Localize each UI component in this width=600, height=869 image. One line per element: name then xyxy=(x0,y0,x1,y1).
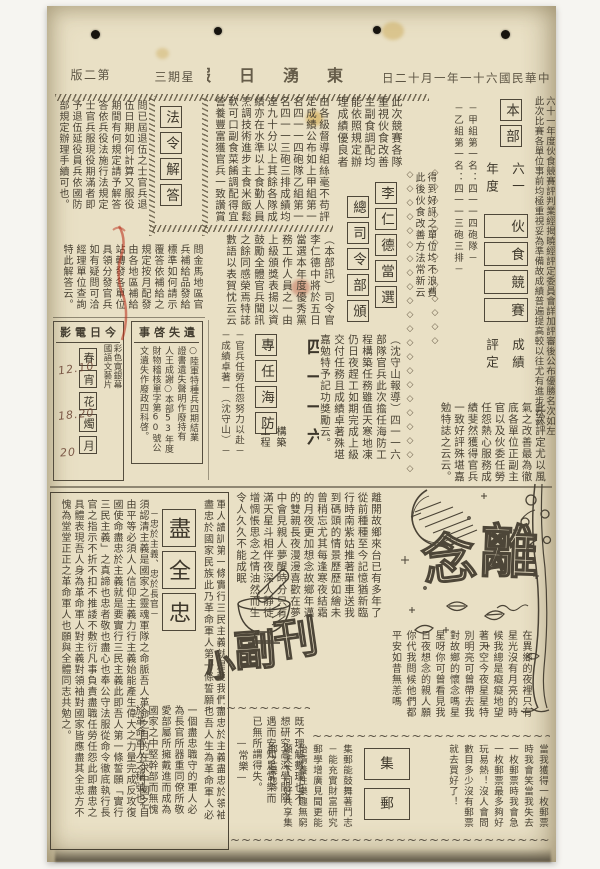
stamp-body-right: 當我獲得一枚郵票 時我會笑當我失去 一枚郵票時我會急 一枚郵票最多夠好 玩易熱！… xyxy=(424,744,550,836)
mess-body-left: 由各級督導組絲毫不苟評 定成績公布如上甲組第一 名四一一四砲隊乙組第一 名四一一… xyxy=(212,96,330,227)
zigzag-border-vertical xyxy=(149,96,155,236)
punch-hole xyxy=(91,30,100,39)
def-headline-chars: 專任海防 xyxy=(259,332,273,436)
scanned-newspaper-screenshot: { "meta": { "date": "中華民國六十一年一月十二日", "pa… xyxy=(0,0,600,869)
mess-body-bottom: 此次評定尤以風 氣之改善最為徹 底各單位正副主 官以及伙委任勞 任怨熱心服務成 … xyxy=(438,402,546,486)
farewell-essay-bottom: 在異鄉的夜裡只有 星光沒有月亮的時 候我總是癡癡地望 著天空今夜星星特 別明亮可… xyxy=(386,630,532,734)
supplement-title-char-kan: 刊 xyxy=(271,615,321,665)
def-body: （沈守山報導）四一一六 部隊官兵此次擔任海防工 程構築任務雖值天寒地凍 仍日夜趕… xyxy=(316,334,402,494)
loyalty-essay-box: 軍人讀訓第一條實行三民主義就是要我們盡忠於主義盡忠於領袖 盡忠於國家民族此乃革命… xyxy=(50,492,229,850)
mess-headline-top: 本部 xyxy=(499,97,523,149)
law-box-title-chars: 法令解答 xyxy=(163,104,179,208)
loyalty-body-bottom: 一個盡忠職守的軍人必 為長官所器重同僚所敬 愛部屬所擁戴進而成為 國家之中堅幹部… xyxy=(131,705,197,843)
li-headline-2: 總司令部頒 xyxy=(346,194,370,324)
masthead-title: 東湧日報 xyxy=(207,62,371,86)
column-rule xyxy=(208,320,209,480)
movies-note: 彩色寬銀幕 國語文藝片 xyxy=(102,344,122,474)
mess-headline-main: 伙食競賽 xyxy=(483,212,529,324)
age-stain xyxy=(382,22,404,40)
newspaper-page: 中華民國六十一年一月十二日 東湧日報 星期三 第二版 六十一年度伙食競賽評判業經… xyxy=(47,6,556,862)
def-headline-sub: 構築 工程 xyxy=(253,426,287,466)
loyalty-title: 盡全忠 xyxy=(161,507,197,633)
weekday-label: 星期三 xyxy=(139,68,195,85)
li-headline: 李仁德當選 xyxy=(374,180,398,310)
supplement-title-char-xiao: 小 xyxy=(202,649,238,685)
handwritten-showtime: 20 xyxy=(60,445,77,459)
stamp-title-boxed: 集郵 xyxy=(364,744,416,824)
mess-kicker: －甲組第一名：四一一四砲隊－ －乙組第一名：四一一三砲三排－ xyxy=(447,103,478,341)
li-body: （本部訊）司令官 李仁德中將於五日 當選本年度優秀黨 務工作人員之一由 上級頒獎… xyxy=(212,234,336,334)
wavy-divider: ~~~~~~~~~~~~~~~~~~~~~~~~~~~~~~~~~~~~~~~~… xyxy=(204,704,310,714)
issue-date: 中華民國六十一年一月十二日 xyxy=(377,70,551,86)
law-question-1: 問已屆退伍之士官兵退 伍日期如何計算又服役 期間有何規定請予解答 答依兵役法施行… xyxy=(55,100,147,240)
stamp-title-chars: 集郵 xyxy=(364,754,410,812)
diamond-divider: ◇◇◇◇◇◇◇◇◇◇◇◇◇◇◇◇◇◇◇◇◇◇ xyxy=(403,170,415,490)
mess-headline-main-chars: 伙食競賽 xyxy=(508,212,524,324)
punch-hole xyxy=(501,30,510,39)
edition-label: 第二版 xyxy=(55,66,111,83)
loyalty-title-chars: 盡全忠 xyxy=(165,507,190,633)
wavy-divider: ~~~~~~~~~~~~~~~~~~~~~~~~~~~~~~~~~~~~~~~~… xyxy=(312,732,550,742)
mess-headline-mid: 六一 年度 xyxy=(476,162,530,214)
supplement-title-char-fu: 副 xyxy=(233,629,278,674)
age-stain xyxy=(156,48,169,59)
farewell-title-char-nian: 念 xyxy=(419,530,479,590)
mess-body-right: 此次競賽各隊 重視伙食改善 主副食調配均 能依照規定辦 理成績優良者 xyxy=(334,96,403,174)
red-pen-scribble xyxy=(105,224,133,344)
scan-edge-shadow xyxy=(55,848,551,862)
def-headline-boxed: 專任海防 xyxy=(254,332,278,436)
zigzag-border-vertical xyxy=(202,96,208,236)
farewell-title-char-li: 離 xyxy=(479,522,539,582)
mess-headline-top-chars: 本部 xyxy=(502,97,520,149)
punch-hole xyxy=(214,27,222,35)
movies-box: 今日電影 彩色寬銀幕 國語文藝片 春宵花燭月 12.10 18.20 20 xyxy=(53,321,124,481)
punch-hole xyxy=(373,26,381,34)
lost-notice-body: ○陸軍特種兵四期結業 證書遺失聲明作廢持有 人王成謝○本部53年度 財物稽核單字… xyxy=(135,346,199,460)
stamp-body-left: 集郵能鼓舞著鬥志 －能充實財富研究 郵學增廣見聞更能 怡情養性樂趣無窮 願天下同… xyxy=(234,744,354,836)
li-headline2-chars: 總司令部頒 xyxy=(350,194,366,324)
lost-notice-box: 遺失啓事 ○陸軍特種兵四期結業 證書遺失聲明作廢持有 人王成謝○本部53年度 財… xyxy=(131,321,203,464)
li-headline-chars: 李仁德當選 xyxy=(378,180,394,310)
def-kicker: －官兵任勞任怨努力以赴－ －成績卓著－（沈守山）－ xyxy=(215,330,245,482)
law-box-title: 法令解答 xyxy=(159,104,183,208)
wavy-divider: ~~~~~~~~~~~~~~~~~~~~~~~~~~~~~~~~~~~~~~~~… xyxy=(230,836,550,846)
lost-notice-header: 遺失啓事 xyxy=(134,324,199,343)
zigzag-divider xyxy=(150,225,333,232)
